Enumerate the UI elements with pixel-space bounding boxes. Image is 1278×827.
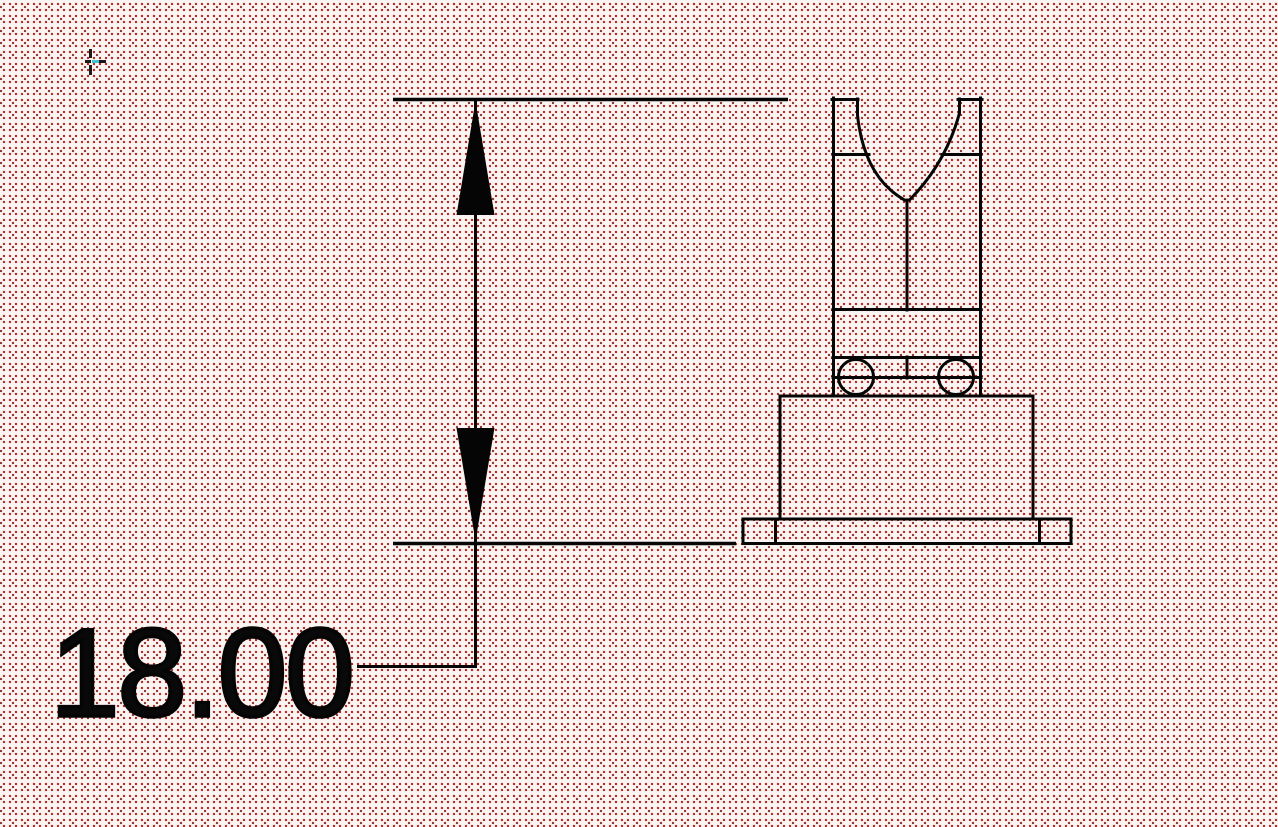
crosshair-left-dash [85, 60, 91, 63]
cad-drawing-viewport[interactable]: 18.00 [0, 0, 1278, 827]
crosshair-bottom-tick [89, 65, 92, 75]
vertical-dimension-annotation[interactable]: 18.00 [50, 100, 788, 744]
part-terminal-side-view[interactable] [743, 98, 1071, 544]
funnel-right-edge[interactable] [910, 99, 960, 200]
base-block[interactable] [780, 396, 1033, 519]
crosshair-top-tick [89, 49, 92, 58]
dimension-arrowhead-up-icon [457, 101, 495, 215]
dimension-arrowhead-down-icon [457, 428, 495, 541]
dimension-value-text[interactable]: 18.00 [50, 604, 353, 743]
crosshair-cyan-dash [92, 60, 99, 63]
crosshair-right-dash [99, 60, 106, 63]
funnel-left-edge[interactable] [858, 99, 905, 200]
drawing-canvas[interactable]: 18.00 [0, 0, 1278, 827]
flange-bar[interactable] [743, 519, 1071, 544]
crosshair-cursor-icon [85, 49, 106, 75]
